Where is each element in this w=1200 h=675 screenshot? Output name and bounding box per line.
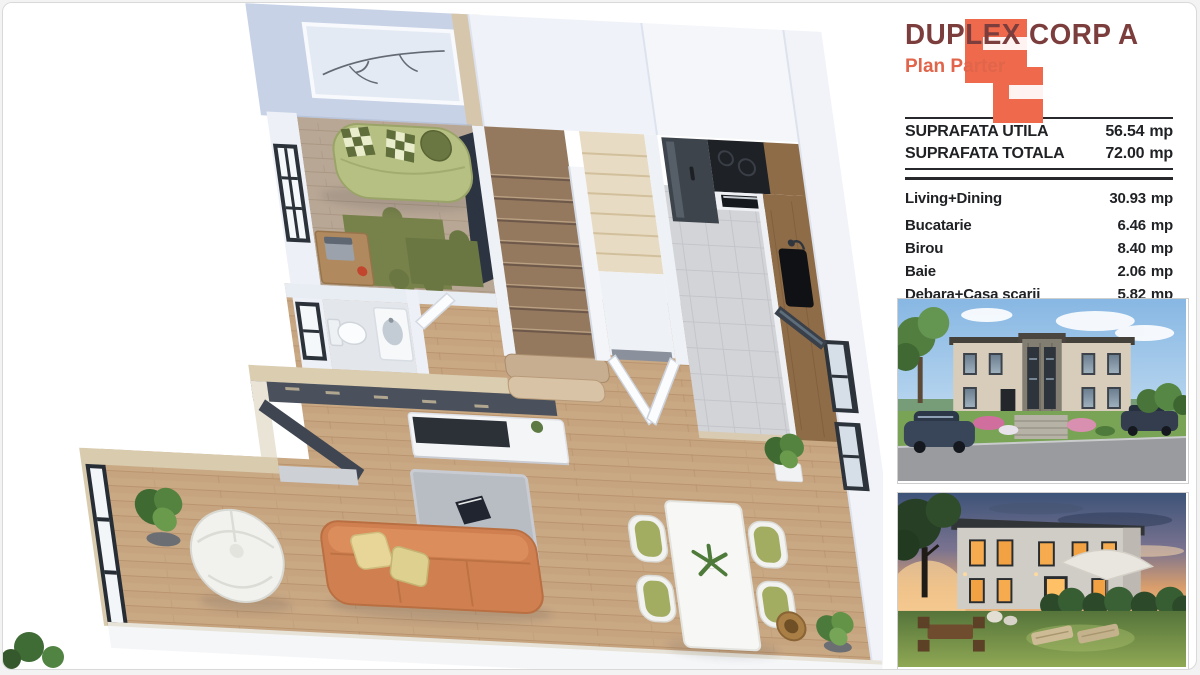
beanbag	[987, 611, 1003, 623]
summary-label: SUPRAFATA UTILA	[905, 123, 1048, 141]
summary-label: SUPRAFATA TOTALA	[905, 145, 1064, 163]
tv-console	[408, 413, 569, 465]
orange-sofa	[319, 520, 546, 614]
room-row-living: Living+Dining 30.93mp	[905, 190, 1173, 207]
brochure-slide: DUPLEX CORP A Plan Parter SUPRAFATA UTIL…	[2, 2, 1197, 670]
divider-double	[905, 177, 1173, 184]
understair-debara	[599, 271, 676, 358]
wall-art	[304, 24, 462, 103]
room-label: Birou	[905, 240, 943, 257]
room-row-birou: Birou 8.40mp	[905, 240, 1173, 257]
page: DUPLEX CORP A Plan Parter SUPRAFATA UTIL…	[0, 0, 1200, 675]
divider	[905, 168, 1173, 170]
exterior-foliage	[3, 632, 64, 669]
room-label: Living+Dining	[905, 190, 1002, 207]
exterior-day-render	[898, 299, 1186, 481]
room-label: Baie	[905, 263, 936, 280]
room-birou	[297, 117, 504, 302]
info-panel: DUPLEX CORP A Plan Parter SUPRAFATA UTIL…	[883, 3, 1195, 669]
photo-exterior-day	[897, 298, 1189, 484]
brand-header: DUPLEX CORP A Plan Parter	[905, 19, 1185, 115]
page-title: DUPLEX CORP A	[905, 19, 1174, 52]
vanity-sink	[373, 308, 413, 362]
room-row-baie: Baie 2.06mp	[905, 263, 1173, 280]
room-row-bucatarie: Bucatarie 6.46mp	[905, 217, 1173, 234]
photo-exterior-dusk	[897, 492, 1189, 670]
house-front	[949, 333, 1134, 417]
summary-value: 72.00mp	[1105, 145, 1173, 163]
beanbag	[1004, 616, 1018, 626]
summary-row-totala: SUPRAFATA TOTALA 72.00mp	[905, 141, 1173, 163]
summary-value: 56.54mp	[1105, 123, 1173, 141]
floorplan-area	[3, 3, 883, 669]
page-subtitle: Plan Parter	[905, 56, 1185, 78]
floorplan-3d	[3, 3, 883, 669]
desk	[315, 231, 374, 286]
room-label: Bucatarie	[905, 217, 972, 234]
exterior-dusk-render	[898, 493, 1186, 667]
